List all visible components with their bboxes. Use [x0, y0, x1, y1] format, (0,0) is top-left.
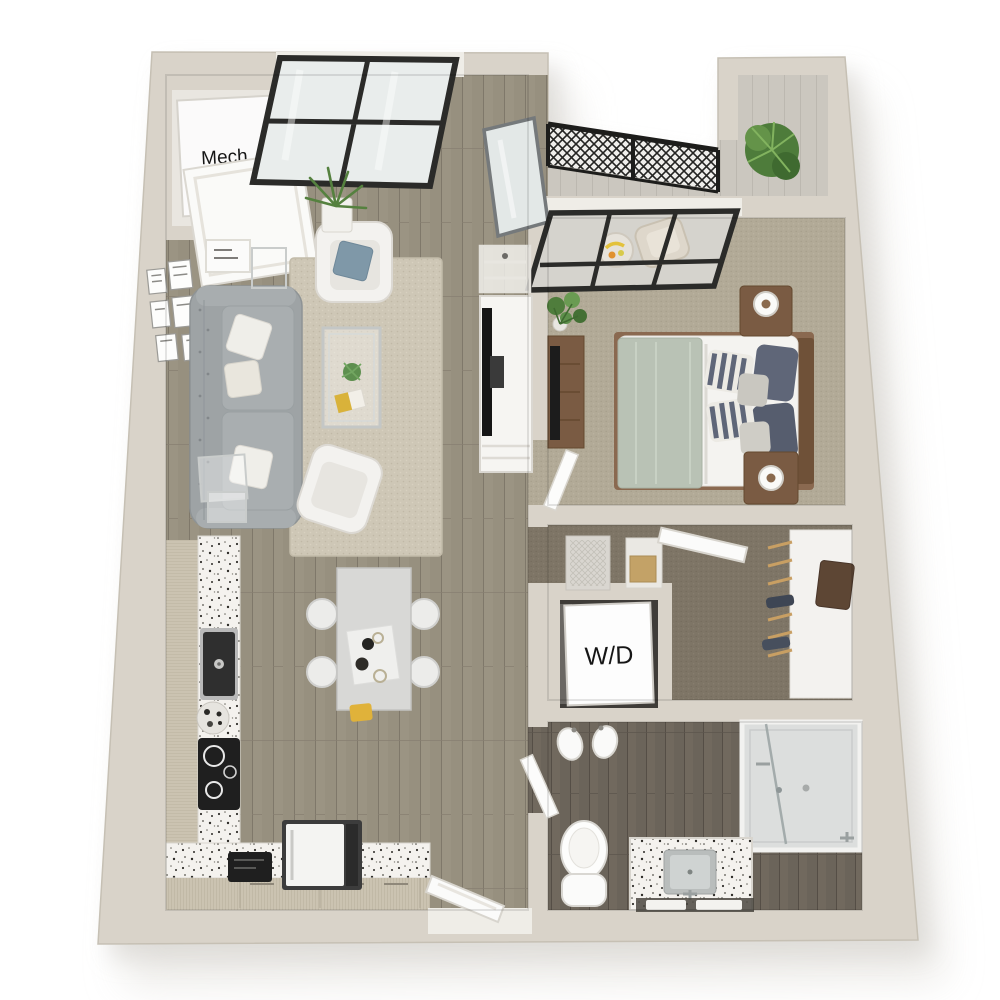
living-window [253, 58, 456, 186]
towel [646, 900, 686, 910]
bedroom-window [528, 211, 738, 291]
pendant-cord [599, 726, 604, 731]
floorplan-canvas: Mech. [0, 0, 1000, 1000]
lamp-finial [767, 474, 776, 483]
pendant-cord [572, 728, 577, 733]
fruit-lemon [618, 250, 624, 256]
pillow-gray [737, 373, 770, 407]
bedroom-dresser [548, 336, 584, 448]
side-table-cube [206, 240, 250, 272]
bedroom-tv [550, 346, 560, 440]
shower-door-handle [776, 787, 782, 793]
fridge-door [286, 824, 344, 886]
console-shelf [480, 246, 530, 292]
fridge-side [346, 824, 358, 886]
hall-threshold [528, 527, 548, 583]
sink-drain [688, 870, 693, 875]
shower [742, 722, 860, 850]
toilet-seat [569, 828, 599, 868]
headboard [796, 338, 814, 484]
through-glass-view [528, 211, 738, 291]
kitchen-sink [200, 628, 238, 700]
pillow-gray [739, 421, 771, 455]
nightstand-top [740, 286, 792, 336]
floorplan-svg: Mech. [0, 0, 1000, 1000]
bowl-dark [356, 658, 369, 671]
armchair-top [316, 222, 392, 302]
washer-dryer-label: W/D [584, 641, 634, 671]
shower-drain [803, 785, 810, 792]
tv-console [480, 246, 532, 472]
kitchen-cabinet-grain [166, 540, 198, 845]
cooktop [198, 738, 240, 810]
console-decor [502, 253, 508, 259]
laundry-closet: W/D [560, 600, 658, 708]
coffee-table [323, 328, 380, 427]
balcony-floor-connector [718, 140, 738, 196]
dining-stool [409, 657, 439, 687]
blue-pillow [332, 240, 373, 281]
toilet [561, 821, 607, 906]
dish-tray [197, 702, 229, 734]
lamp-finial [762, 300, 771, 309]
glass-cube-table-small [208, 492, 246, 522]
closet-shelving [790, 530, 852, 698]
tv-mount [490, 356, 504, 388]
cooktop-surface [198, 738, 240, 810]
table-runner-tray [346, 625, 399, 685]
bowl-dark [362, 638, 374, 650]
dining-stool [307, 599, 337, 629]
refrigerator [282, 820, 362, 890]
fruit-orange [609, 252, 616, 259]
picture-frame [150, 300, 171, 328]
tray [197, 702, 229, 734]
towel [696, 900, 742, 910]
dining-stool [307, 657, 337, 687]
toilet-tank [562, 874, 606, 906]
suitcase [815, 560, 854, 610]
storage-basket [630, 556, 656, 582]
sink-drain [217, 662, 221, 666]
shower-pan [742, 722, 860, 850]
yellow-stool [349, 703, 373, 722]
linen-cabinet-front [570, 540, 606, 586]
nightstand-bottom [744, 452, 798, 504]
throw-pillow [224, 360, 262, 398]
balcony-plant-leaf [745, 125, 771, 151]
dining-stool [409, 599, 439, 629]
vanity [630, 838, 754, 912]
